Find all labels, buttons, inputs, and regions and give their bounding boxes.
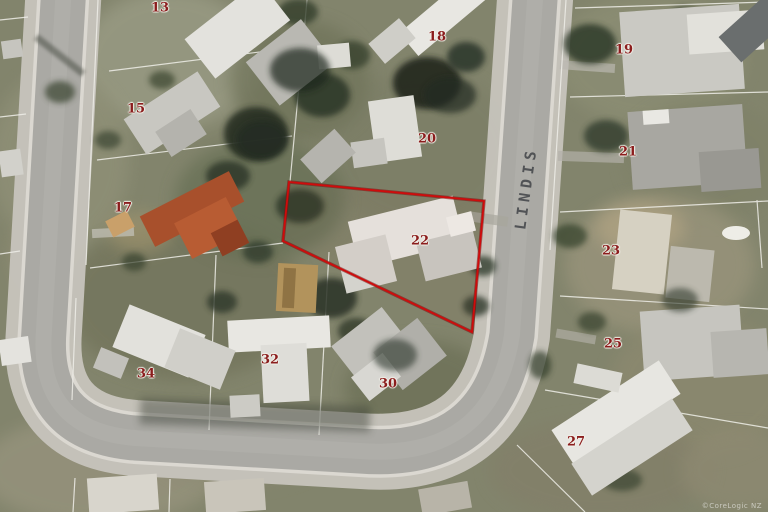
- imagery-watermark: ©CoreLogic NZ: [702, 502, 762, 510]
- aerial-map-canvas[interactable]: 1315171819202122232527303234 LINDIS ©Cor…: [0, 0, 768, 512]
- aerial-imagery: [0, 0, 768, 512]
